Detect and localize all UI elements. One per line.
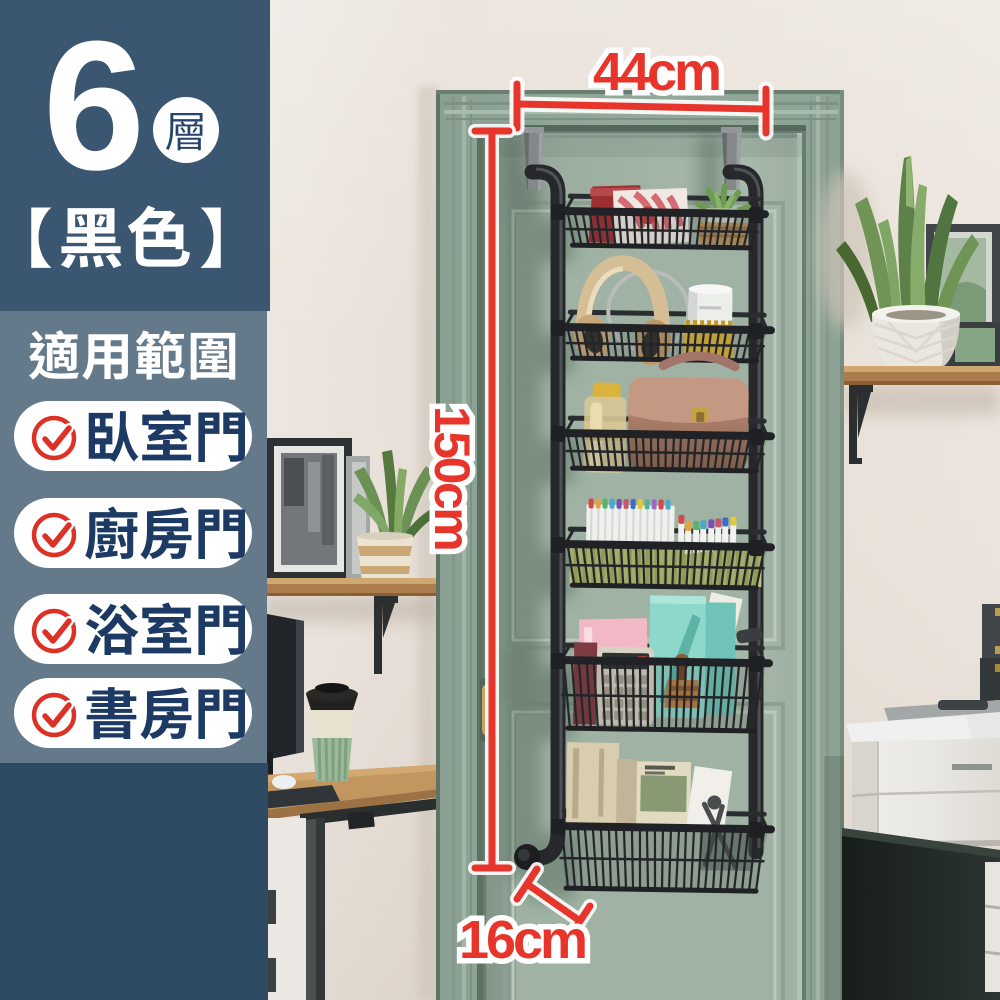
svg-text:6: 6 [43, 2, 145, 208]
svg-text:16cm: 16cm [459, 910, 585, 970]
svg-text:44cm: 44cm [593, 42, 719, 102]
svg-text:150cm: 150cm [424, 406, 480, 549]
